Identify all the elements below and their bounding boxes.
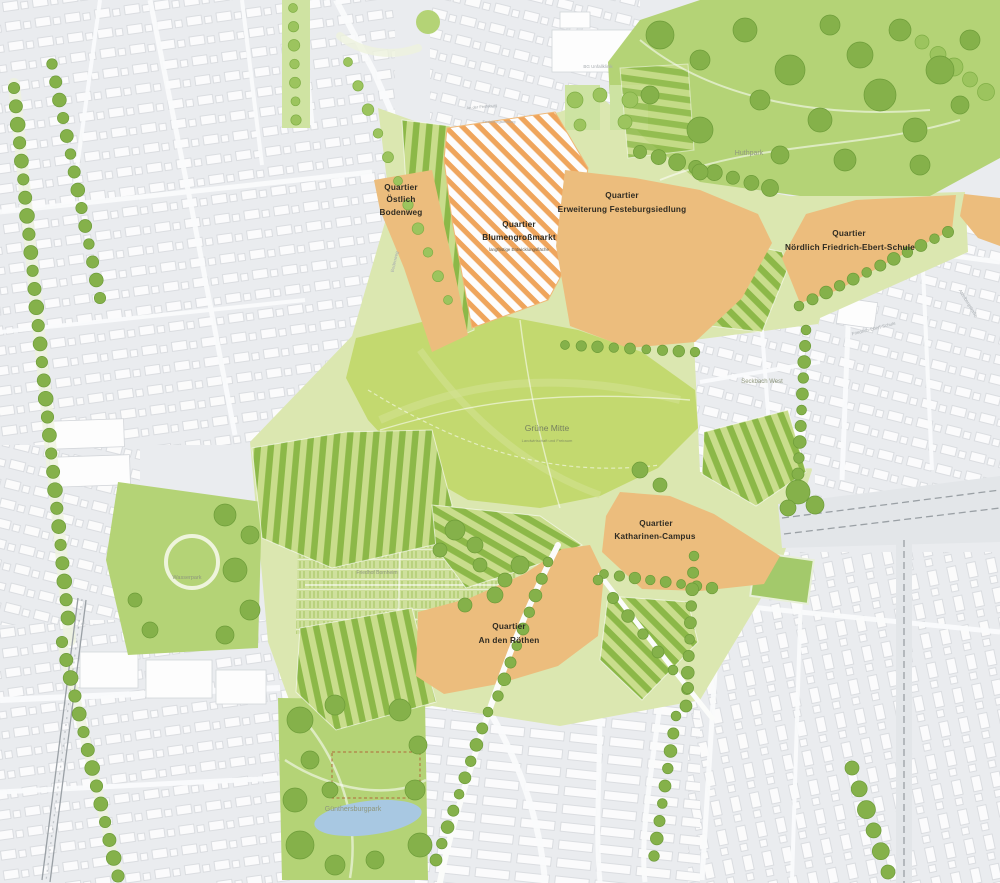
tree-icon bbox=[325, 695, 345, 715]
tree-icon bbox=[57, 574, 72, 589]
tree-icon bbox=[887, 253, 900, 266]
tree-icon bbox=[862, 268, 872, 278]
tree-icon bbox=[851, 781, 867, 797]
tree-icon bbox=[652, 646, 664, 658]
tree-icon bbox=[216, 626, 234, 644]
tree-icon bbox=[775, 55, 805, 85]
tree-icon bbox=[689, 551, 699, 561]
tree-icon bbox=[85, 761, 100, 776]
tree-icon bbox=[142, 622, 158, 638]
tree-icon bbox=[659, 780, 671, 792]
tree-icon bbox=[52, 520, 66, 534]
tree-icon bbox=[362, 104, 374, 116]
tree-icon bbox=[926, 56, 954, 84]
tree-icon bbox=[13, 137, 25, 149]
tree-icon bbox=[61, 611, 75, 625]
tree-icon bbox=[8, 82, 19, 93]
tree-icon bbox=[467, 537, 483, 553]
tree-icon bbox=[622, 610, 635, 623]
tree-icon bbox=[806, 496, 824, 514]
tree-icon bbox=[498, 573, 512, 587]
tree-icon bbox=[654, 815, 665, 826]
tree-icon bbox=[128, 593, 142, 607]
tree-icon bbox=[56, 557, 69, 570]
tree-icon bbox=[383, 152, 394, 163]
tree-icon bbox=[69, 690, 81, 702]
quarter-label: Quartier bbox=[639, 519, 673, 528]
label-gruene-mitte-sub: Landwirtschaft und Freiraum bbox=[522, 438, 573, 443]
tree-icon bbox=[690, 347, 700, 357]
tree-icon bbox=[807, 294, 818, 305]
tree-icon bbox=[726, 171, 739, 184]
tree-icon bbox=[459, 772, 471, 784]
label-wasserpark: Wasserpark bbox=[172, 575, 201, 581]
tree-icon bbox=[353, 81, 363, 91]
tree-icon bbox=[592, 341, 604, 353]
tree-icon bbox=[820, 15, 840, 35]
tree-icon bbox=[881, 865, 895, 879]
tree-icon bbox=[84, 239, 95, 250]
tree-icon bbox=[792, 468, 804, 480]
tree-icon bbox=[493, 691, 504, 702]
tree-icon bbox=[470, 739, 483, 752]
tree-icon bbox=[405, 780, 425, 800]
tree-icon bbox=[942, 226, 953, 237]
tree-icon bbox=[28, 282, 41, 295]
quarter-label: Katharinen-Campus bbox=[614, 532, 695, 541]
tree-icon bbox=[536, 573, 547, 584]
tree-icon bbox=[687, 117, 713, 143]
tree-icon bbox=[60, 130, 73, 143]
tree-icon bbox=[614, 571, 624, 581]
tree-icon bbox=[910, 155, 930, 175]
tree-icon bbox=[771, 146, 789, 164]
tree-icon bbox=[223, 558, 247, 582]
tree-icon bbox=[796, 388, 808, 400]
tree-icon bbox=[389, 699, 411, 721]
tree-icon bbox=[291, 115, 301, 125]
tree-icon bbox=[55, 539, 66, 550]
tree-icon bbox=[690, 50, 710, 70]
tree-icon bbox=[448, 805, 459, 816]
tree-icon bbox=[657, 799, 667, 809]
tree-icon bbox=[103, 833, 116, 846]
tree-icon bbox=[322, 782, 338, 798]
label-guenthersburgpark: Günthersburgpark bbox=[325, 806, 382, 813]
tree-icon bbox=[857, 801, 875, 819]
tree-icon bbox=[663, 763, 674, 774]
tree-icon bbox=[671, 711, 681, 721]
tree-icon bbox=[762, 180, 779, 197]
tree-icon bbox=[106, 851, 121, 866]
tree-icon bbox=[750, 90, 770, 110]
quarter-label: Quartier bbox=[605, 191, 639, 200]
tree-icon bbox=[433, 543, 447, 557]
tree-icon bbox=[960, 30, 980, 50]
tree-icon bbox=[680, 700, 692, 712]
label-friedhof: Friedhof Bornheim bbox=[356, 570, 397, 576]
tree-icon bbox=[649, 851, 660, 862]
tree-icon bbox=[72, 707, 86, 721]
tree-icon bbox=[14, 154, 28, 168]
tree-icon bbox=[366, 851, 384, 869]
quarter-label: Quartier bbox=[492, 622, 526, 631]
tree-icon bbox=[930, 234, 940, 244]
tree-icon bbox=[412, 223, 424, 235]
tree-icon bbox=[423, 248, 433, 258]
tree-icon bbox=[437, 838, 448, 849]
tree-icon bbox=[373, 129, 383, 139]
tree-icon bbox=[682, 682, 693, 693]
tree-icon bbox=[291, 97, 300, 106]
tree-icon bbox=[458, 598, 472, 612]
tree-icon bbox=[673, 345, 685, 357]
tree-icon bbox=[834, 281, 845, 292]
tree-icon bbox=[677, 580, 686, 589]
masterplan-map: Quartier Östlich Bodenweg Quartier Blume… bbox=[0, 0, 1000, 883]
tree-icon bbox=[794, 301, 804, 311]
tree-icon bbox=[669, 154, 686, 171]
tree-icon bbox=[847, 42, 873, 68]
quarter-sublabel: langfristige Entwicklungsfläche bbox=[489, 247, 549, 252]
tree-icon bbox=[561, 341, 570, 350]
tree-icon bbox=[48, 483, 63, 498]
tree-icon bbox=[487, 587, 503, 603]
tree-icon bbox=[51, 502, 63, 514]
tree-icon bbox=[683, 650, 694, 661]
tree-icon bbox=[684, 617, 696, 629]
tree-icon bbox=[473, 558, 487, 572]
tree-icon bbox=[574, 119, 586, 131]
tree-icon bbox=[18, 174, 29, 185]
tree-icon bbox=[41, 411, 53, 423]
tree-icon bbox=[744, 175, 759, 190]
tree-icon bbox=[433, 271, 444, 282]
tree-icon bbox=[454, 789, 464, 799]
tree-icon bbox=[60, 653, 73, 666]
tree-icon bbox=[214, 504, 236, 526]
tree-icon bbox=[290, 77, 301, 88]
tree-icon bbox=[866, 823, 881, 838]
tree-icon bbox=[793, 436, 806, 449]
tree-icon bbox=[56, 636, 67, 647]
tree-icon bbox=[668, 665, 678, 675]
tree-icon bbox=[653, 478, 667, 492]
tree-icon bbox=[9, 100, 22, 113]
tree-icon bbox=[32, 319, 44, 331]
quarter-label: Quartier bbox=[832, 229, 866, 238]
tree-icon bbox=[638, 629, 649, 640]
quarter-label: Quartier bbox=[384, 183, 418, 192]
tree-icon bbox=[657, 345, 667, 355]
tree-icon bbox=[498, 673, 511, 686]
tree-icon bbox=[706, 165, 722, 181]
tree-icon bbox=[10, 117, 25, 132]
tree-icon bbox=[46, 448, 57, 459]
tree-icon bbox=[650, 832, 663, 845]
tree-icon bbox=[47, 59, 58, 70]
tree-icon bbox=[71, 183, 85, 197]
tree-icon bbox=[23, 228, 35, 240]
tree-icon bbox=[81, 743, 94, 756]
label-festeburgsiedlung: Festeburgsiedlung bbox=[483, 119, 516, 124]
tree-icon bbox=[847, 273, 859, 285]
label-seckbach-west: Seckbach West bbox=[741, 379, 783, 385]
tree-icon bbox=[79, 220, 92, 233]
tree-icon bbox=[444, 296, 453, 305]
tree-icon bbox=[795, 420, 806, 431]
quarter-label: Bodenweg bbox=[380, 208, 423, 217]
tree-icon bbox=[864, 79, 896, 111]
tree-icon bbox=[430, 854, 442, 866]
tree-icon bbox=[477, 723, 488, 734]
tree-icon bbox=[87, 256, 99, 268]
tree-icon bbox=[38, 391, 53, 406]
tree-icon bbox=[76, 202, 87, 213]
tree-icon bbox=[688, 567, 699, 578]
quarter-label: Nördlich Friedrich-Ebert-Schule bbox=[785, 243, 915, 252]
tree-icon bbox=[798, 373, 809, 384]
tree-icon bbox=[408, 833, 432, 857]
tree-icon bbox=[903, 118, 927, 142]
tree-icon bbox=[798, 356, 811, 369]
tree-icon bbox=[872, 843, 889, 860]
tree-icon bbox=[629, 572, 641, 584]
tree-icon bbox=[445, 520, 465, 540]
tree-icon bbox=[651, 150, 666, 165]
tree-icon bbox=[642, 345, 651, 354]
tree-icon bbox=[668, 728, 679, 739]
tree-icon bbox=[633, 145, 646, 158]
tree-icon bbox=[646, 575, 656, 585]
tree-icon bbox=[875, 260, 886, 271]
tree-icon bbox=[593, 88, 607, 102]
tree-icon bbox=[780, 500, 796, 516]
tree-icon bbox=[20, 209, 35, 224]
tree-icon bbox=[681, 666, 694, 679]
tree-icon bbox=[632, 462, 648, 478]
tree-icon bbox=[511, 556, 529, 574]
label-gruene-mitte: Grüne Mitte bbox=[525, 423, 570, 433]
traffic-island bbox=[416, 10, 440, 34]
tree-icon bbox=[685, 634, 695, 644]
tree-icon bbox=[301, 751, 319, 769]
tree-icon bbox=[90, 780, 102, 792]
tree-icon bbox=[99, 816, 110, 827]
tree-icon bbox=[112, 870, 124, 882]
quarter-label: Blumengroßmarkt bbox=[482, 233, 556, 242]
tree-icon bbox=[543, 557, 553, 567]
tree-icon bbox=[834, 149, 856, 171]
tree-icon bbox=[465, 756, 476, 767]
tree-icon bbox=[618, 115, 632, 129]
tree-icon bbox=[646, 21, 674, 49]
tree-icon bbox=[68, 166, 80, 178]
tree-icon bbox=[27, 265, 38, 276]
tree-icon bbox=[241, 526, 259, 544]
tree-icon bbox=[660, 577, 671, 588]
tree-icon bbox=[664, 745, 677, 758]
tree-icon bbox=[344, 58, 353, 67]
tree-icon bbox=[797, 405, 807, 415]
tree-icon bbox=[78, 726, 89, 737]
tree-icon bbox=[483, 707, 493, 717]
tree-icon bbox=[915, 35, 929, 49]
tree-icon bbox=[33, 337, 47, 351]
tree-icon bbox=[89, 273, 103, 287]
tree-icon bbox=[524, 607, 535, 618]
tree-icon bbox=[286, 831, 314, 859]
quarter-label: Erweiterung Festeburgsiedlung bbox=[558, 205, 687, 214]
tree-icon bbox=[800, 340, 811, 351]
tree-icon bbox=[94, 292, 105, 303]
tree-icon bbox=[289, 4, 298, 13]
tree-icon bbox=[641, 86, 659, 104]
tree-icon bbox=[505, 657, 516, 668]
tree-icon bbox=[607, 592, 618, 603]
tree-icon bbox=[288, 40, 300, 52]
tree-icon bbox=[951, 96, 969, 114]
tree-icon bbox=[19, 191, 32, 204]
tree-icon bbox=[567, 92, 583, 108]
tree-icon bbox=[63, 671, 78, 686]
tree-icon bbox=[240, 600, 260, 620]
map-canvas: Quartier Östlich Bodenweg Quartier Blume… bbox=[0, 0, 1000, 883]
tree-icon bbox=[576, 341, 586, 351]
tree-icon bbox=[889, 19, 911, 41]
tree-icon bbox=[978, 84, 995, 101]
tree-icon bbox=[94, 797, 108, 811]
label-bg-unfallklinik: BG Unfallklinik bbox=[583, 64, 613, 69]
quarter-label: Östlich bbox=[386, 194, 415, 204]
tree-icon bbox=[50, 76, 62, 88]
tree-icon bbox=[325, 855, 345, 875]
tree-icon bbox=[692, 164, 708, 180]
tree-icon bbox=[808, 108, 832, 132]
tree-icon bbox=[794, 453, 805, 464]
tree-icon bbox=[915, 240, 927, 252]
tree-icon bbox=[625, 343, 636, 354]
tree-icon bbox=[283, 788, 307, 812]
tree-icon bbox=[24, 246, 38, 260]
tree-icon bbox=[733, 18, 757, 42]
quarter-label: An den Röthen bbox=[479, 636, 540, 645]
tree-icon bbox=[288, 22, 298, 32]
tree-icon bbox=[441, 821, 454, 834]
tree-icon bbox=[47, 465, 60, 478]
tree-icon bbox=[290, 59, 300, 69]
tree-icon bbox=[36, 356, 47, 367]
quarter-label: Quartier bbox=[502, 220, 536, 229]
label-huthpark: Huthpark bbox=[735, 150, 764, 157]
tree-icon bbox=[57, 112, 68, 123]
tree-icon bbox=[65, 149, 76, 160]
tree-icon bbox=[845, 761, 859, 775]
tree-icon bbox=[820, 286, 833, 299]
tree-icon bbox=[287, 707, 313, 733]
tree-icon bbox=[622, 92, 638, 108]
tree-icon bbox=[706, 582, 718, 594]
tree-icon bbox=[37, 374, 50, 387]
tree-icon bbox=[60, 594, 72, 606]
tree-icon bbox=[686, 583, 699, 596]
tree-icon bbox=[42, 428, 56, 442]
tree-icon bbox=[29, 300, 44, 315]
tree-icon bbox=[53, 93, 67, 107]
tree-icon bbox=[593, 575, 603, 585]
tree-icon bbox=[609, 343, 619, 353]
tree-icon bbox=[529, 589, 542, 602]
tree-icon bbox=[963, 72, 978, 87]
tree-icon bbox=[686, 601, 697, 612]
tree-icon bbox=[801, 325, 811, 335]
tree-icon bbox=[409, 736, 427, 754]
